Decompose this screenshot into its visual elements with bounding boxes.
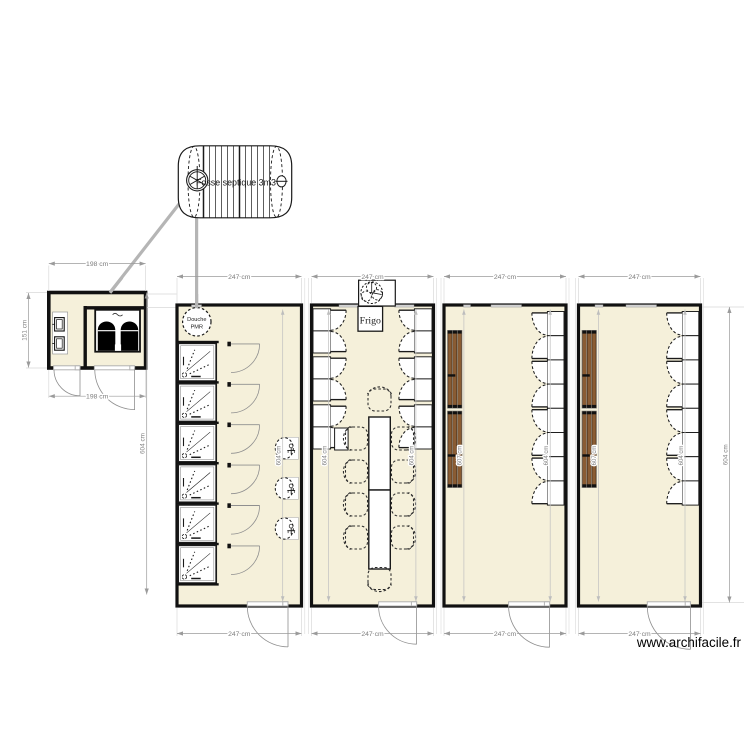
svg-text:198 cm: 198 cm: [86, 261, 109, 268]
svg-text:247 cm: 247 cm: [228, 274, 251, 281]
svg-text:604 cm: 604 cm: [322, 446, 328, 466]
svg-text:247 cm: 247 cm: [494, 274, 517, 281]
svg-text:PMR: PMR: [191, 324, 203, 330]
svg-text:604 cm: 604 cm: [679, 446, 685, 466]
svg-text:247 cm: 247 cm: [494, 631, 517, 638]
svg-text:604 cm: 604 cm: [722, 444, 729, 465]
svg-text:www.archifacile.fr: www.archifacile.fr: [636, 635, 742, 650]
svg-text:Fosse septique 3m3: Fosse septique 3m3: [196, 177, 276, 187]
svg-text:247 cm: 247 cm: [361, 274, 384, 281]
svg-text:151 cm: 151 cm: [22, 320, 29, 341]
svg-text:Frigo: Frigo: [360, 315, 381, 326]
svg-text:247 cm: 247 cm: [228, 631, 251, 638]
svg-text:604 cm: 604 cm: [140, 433, 147, 454]
svg-text:607 cm: 607 cm: [592, 446, 598, 466]
svg-text:Douche: Douche: [187, 317, 206, 323]
svg-text:604 cm: 604 cm: [544, 446, 550, 466]
svg-text:198 cm: 198 cm: [86, 394, 109, 401]
svg-text:607 cm: 607 cm: [458, 446, 464, 466]
svg-text:247 cm: 247 cm: [361, 631, 384, 638]
svg-text:604 cm: 604 cm: [277, 446, 283, 466]
svg-text:604 cm: 604 cm: [410, 446, 416, 466]
svg-text:247 cm: 247 cm: [628, 274, 651, 281]
